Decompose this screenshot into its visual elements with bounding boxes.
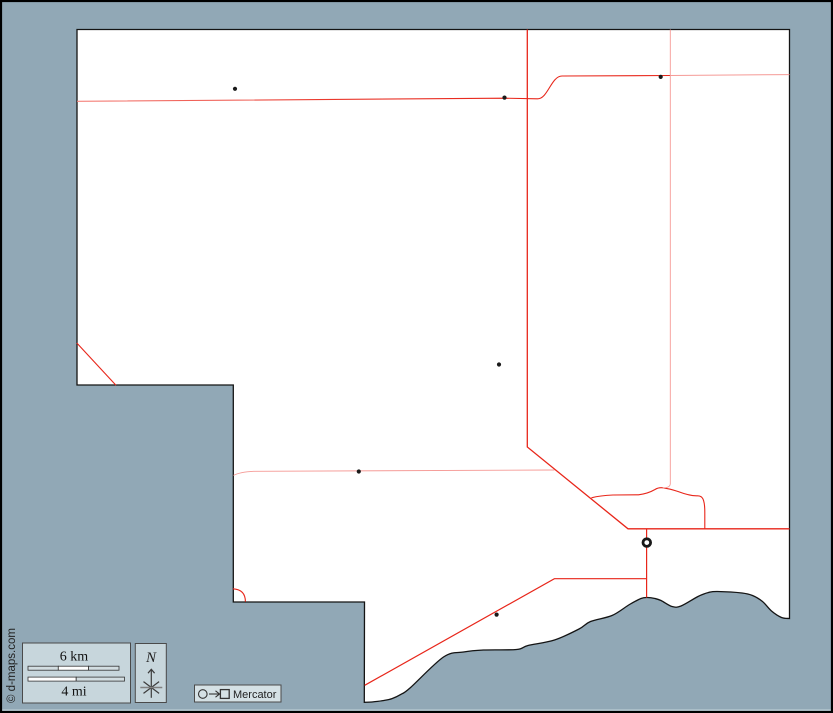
svg-text:4 mi: 4 mi	[61, 685, 86, 700]
svg-text:N: N	[145, 650, 157, 666]
svg-text:6 km: 6 km	[60, 650, 89, 665]
svg-text:© d-maps.com: © d-maps.com	[6, 628, 18, 703]
svg-text:Mercator: Mercator	[233, 689, 277, 701]
